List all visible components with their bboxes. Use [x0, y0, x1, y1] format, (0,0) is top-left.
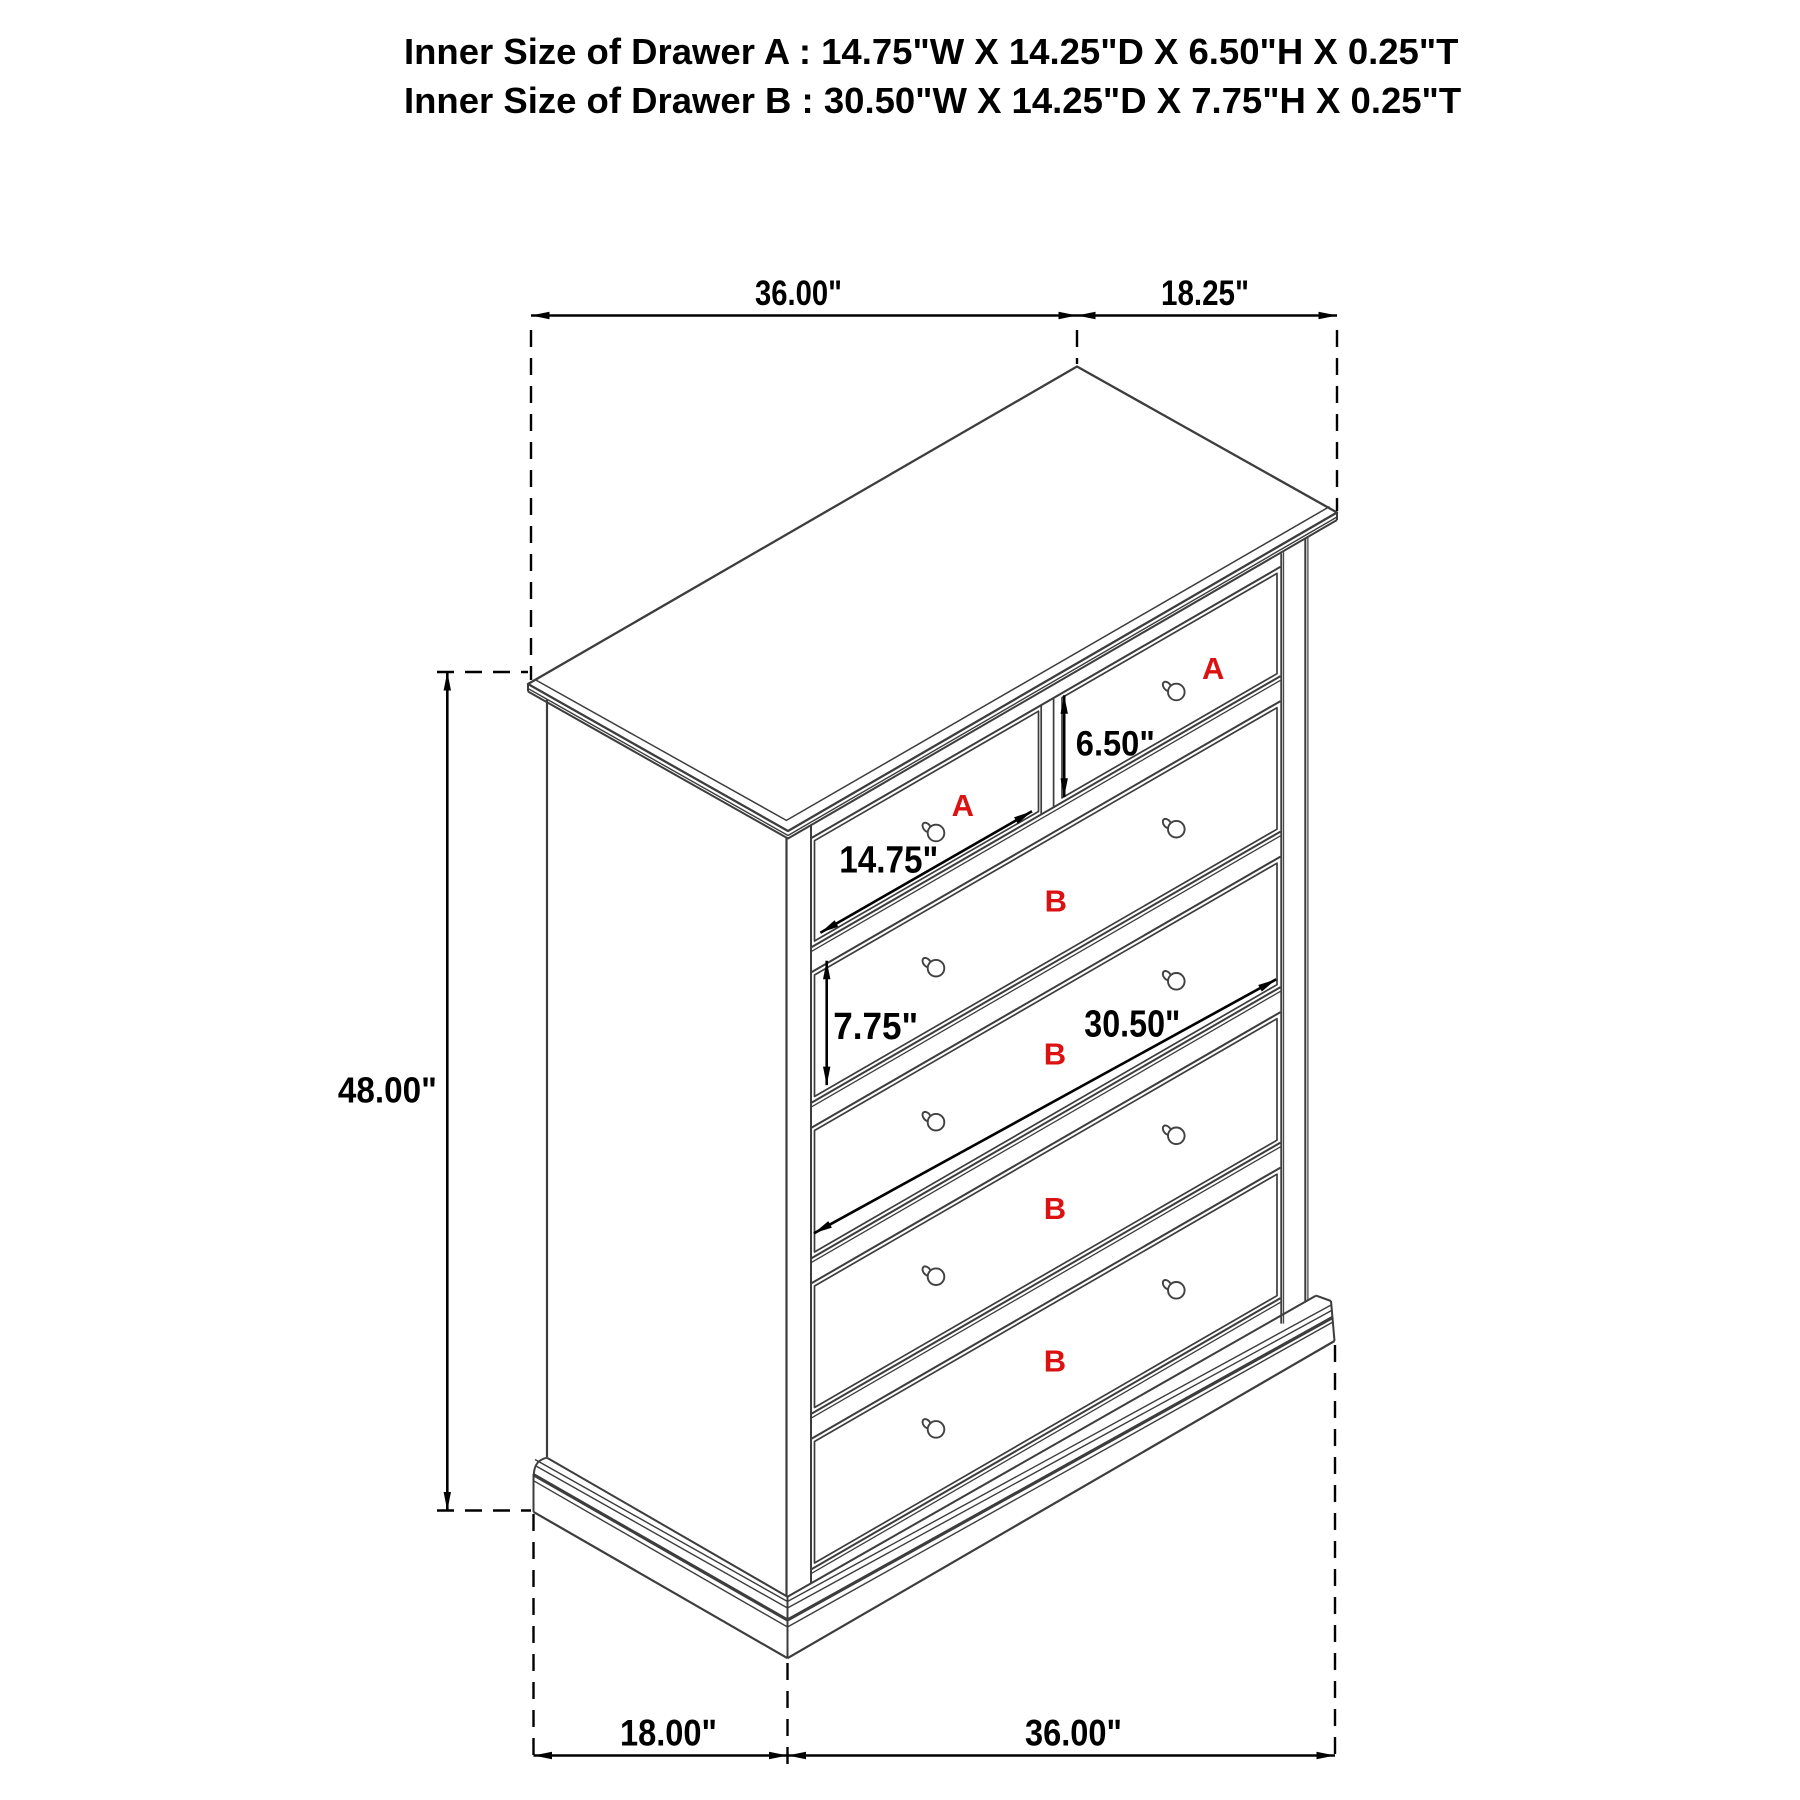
svg-text:B: B: [1044, 1037, 1066, 1072]
svg-text:14.75": 14.75": [839, 840, 938, 882]
svg-text:B: B: [1044, 1191, 1066, 1226]
svg-text:Inner Size of Drawer B : 30.50: Inner Size of Drawer B : 30.50"W X 14.25…: [404, 80, 1461, 121]
svg-text:48.00": 48.00": [338, 1070, 437, 1111]
svg-text:36.00": 36.00": [1025, 1712, 1122, 1753]
svg-text:18.00": 18.00": [620, 1712, 717, 1753]
svg-text:6.50": 6.50": [1076, 725, 1155, 764]
svg-text:A: A: [1202, 651, 1224, 686]
svg-text:B: B: [1044, 1344, 1066, 1379]
svg-text:36.00": 36.00": [755, 274, 842, 313]
svg-text:A: A: [952, 788, 974, 823]
svg-text:30.50": 30.50": [1084, 1004, 1180, 1046]
svg-text:B: B: [1045, 884, 1067, 919]
svg-text:18.25": 18.25": [1161, 274, 1249, 313]
svg-text:7.75": 7.75": [833, 1006, 918, 1048]
svg-text:Inner Size of Drawer A : 14.75: Inner Size of Drawer A : 14.75"W X 14.25…: [404, 31, 1458, 72]
